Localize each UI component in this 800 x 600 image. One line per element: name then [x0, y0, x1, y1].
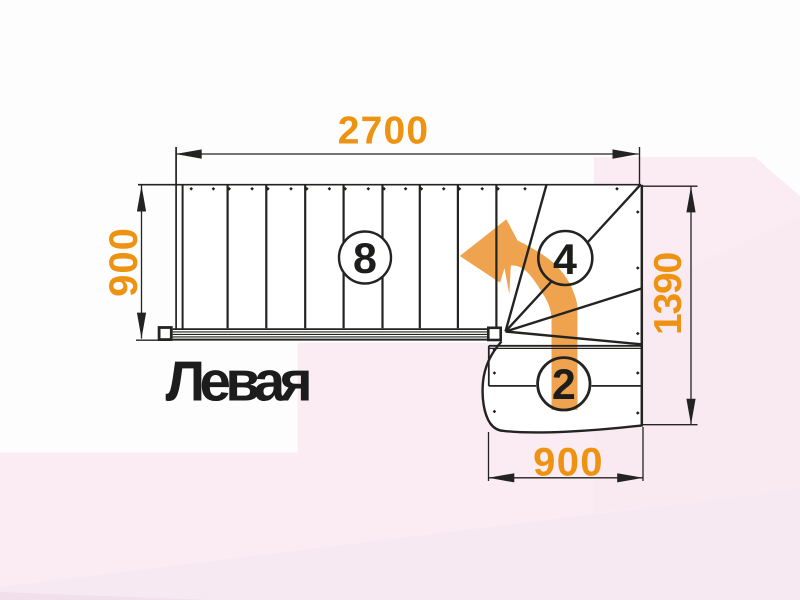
svg-text:Левая: Левая [166, 350, 310, 413]
svg-text:1390: 1390 [647, 253, 690, 335]
svg-text:8: 8 [353, 235, 377, 283]
svg-text:900: 900 [102, 227, 146, 297]
svg-text:2: 2 [552, 361, 576, 409]
svg-text:900: 900 [533, 441, 604, 485]
svg-text:2700: 2700 [338, 110, 430, 153]
svg-text:4: 4 [553, 236, 577, 284]
